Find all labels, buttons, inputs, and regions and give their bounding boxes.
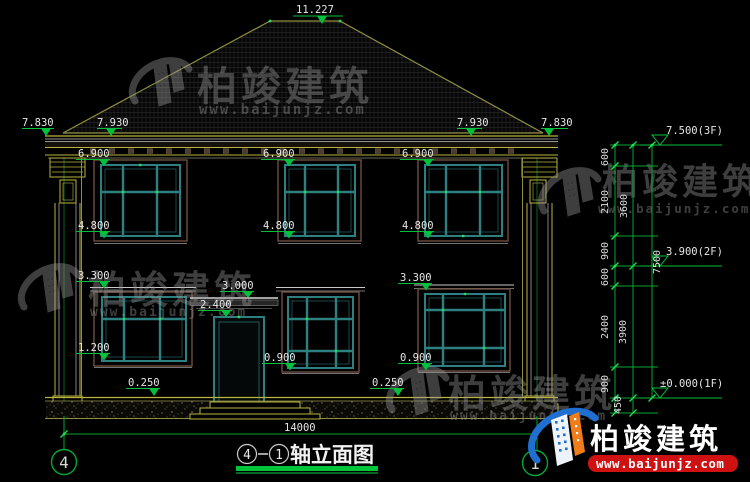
title-axis-from: 4	[243, 448, 251, 463]
title-axis-to: 1	[275, 448, 283, 463]
entry-door	[214, 316, 264, 403]
svg-text:0.250: 0.250	[128, 377, 160, 389]
drawing-title: 4 1 轴立面图	[236, 443, 378, 473]
axis-number: 4	[59, 453, 69, 472]
svg-text:600: 600	[600, 148, 611, 166]
svg-text:3.900(2F): 3.900(2F)	[666, 246, 723, 258]
svg-text:2.400: 2.400	[200, 299, 232, 311]
entry-steps	[190, 402, 320, 419]
svg-text:7.830: 7.830	[22, 117, 54, 129]
svg-text:7.500(3F): 7.500(3F)	[666, 125, 723, 137]
watermark-right-middle: 柏竣建筑 www.baijunjz.com	[541, 162, 750, 216]
elevation-marker-eave-soffit: 6.900	[400, 148, 434, 167]
elevation-marker-eave-left-outer: 7.830	[22, 117, 54, 136]
cad-elevation-drawing: 柏竣建筑 www.baijunjz.com 柏竣建筑 www.baijunjz.…	[0, 0, 750, 482]
svg-text:±0.000(1F): ±0.000(1F)	[660, 378, 723, 390]
svg-text:7.830: 7.830	[541, 117, 573, 129]
watermark-left-middle: 柏竣建筑 www.baijunjz.com	[21, 265, 256, 320]
brand-logo-name: 柏竣建筑	[590, 422, 722, 456]
title-text: 轴立面图	[290, 443, 374, 467]
elevation-marker-sill-1f: 0.900	[398, 352, 432, 371]
svg-text:4.800: 4.800	[263, 220, 295, 232]
elevation-marker-sill-2f: 4.800	[400, 220, 434, 239]
brand-logo: 柏竣建筑 www.baijunjz.com	[531, 411, 738, 472]
elevation-marker-plinth: 0.250	[126, 377, 160, 396]
svg-text:4.800: 4.800	[402, 220, 434, 232]
svg-text:11.227: 11.227	[296, 4, 334, 16]
svg-text:3.300: 3.300	[78, 270, 110, 282]
svg-text:3.000: 3.000	[222, 280, 254, 292]
svg-text:900: 900	[600, 242, 611, 260]
drawing-canvas: 柏竣建筑 www.baijunjz.com 柏竣建筑 www.baijunjz.…	[0, 0, 750, 482]
svg-text:0.250: 0.250	[372, 377, 404, 389]
svg-text:600: 600	[600, 268, 611, 286]
elevation-marker-plinth: 0.250	[370, 377, 404, 396]
svg-text:900: 900	[600, 375, 611, 393]
svg-text:7.930: 7.930	[97, 117, 129, 129]
svg-text:7.930: 7.930	[457, 117, 489, 129]
svg-text:1.200: 1.200	[78, 342, 110, 354]
title-underline	[236, 466, 378, 471]
axis-bubble-4: 4	[52, 450, 77, 475]
svg-text:3.300: 3.300	[400, 272, 432, 284]
svg-text:450: 450	[613, 396, 624, 414]
svg-text:6.900: 6.900	[402, 148, 434, 160]
elevation-marker-sill-1f: 0.900	[262, 352, 296, 371]
svg-text:6.900: 6.900	[78, 148, 110, 160]
svg-text:4.800: 4.800	[78, 220, 110, 232]
svg-text:3600: 3600	[619, 194, 630, 218]
svg-text:6.900: 6.900	[263, 148, 295, 160]
elevation-marker-head-1f: 3.300	[398, 272, 432, 291]
svg-text:0.900: 0.900	[264, 352, 296, 364]
brand-logo-site: www.baijunjz.com	[596, 456, 724, 471]
svg-text:0.900: 0.900	[400, 352, 432, 364]
svg-text:7500: 7500	[652, 250, 663, 274]
elevation-marker-eave-right-outer: 7.830	[541, 117, 573, 136]
svg-text:2400: 2400	[600, 315, 611, 339]
svg-text:3900: 3900	[618, 320, 629, 344]
elevation-marker-3f: 7.500(3F)	[640, 125, 723, 145]
cornice-band	[45, 136, 558, 158]
watermark-site: www.baijunjz.com	[199, 102, 366, 118]
svg-text:2100: 2100	[600, 190, 611, 214]
dim-total-width: 14000	[284, 422, 316, 434]
